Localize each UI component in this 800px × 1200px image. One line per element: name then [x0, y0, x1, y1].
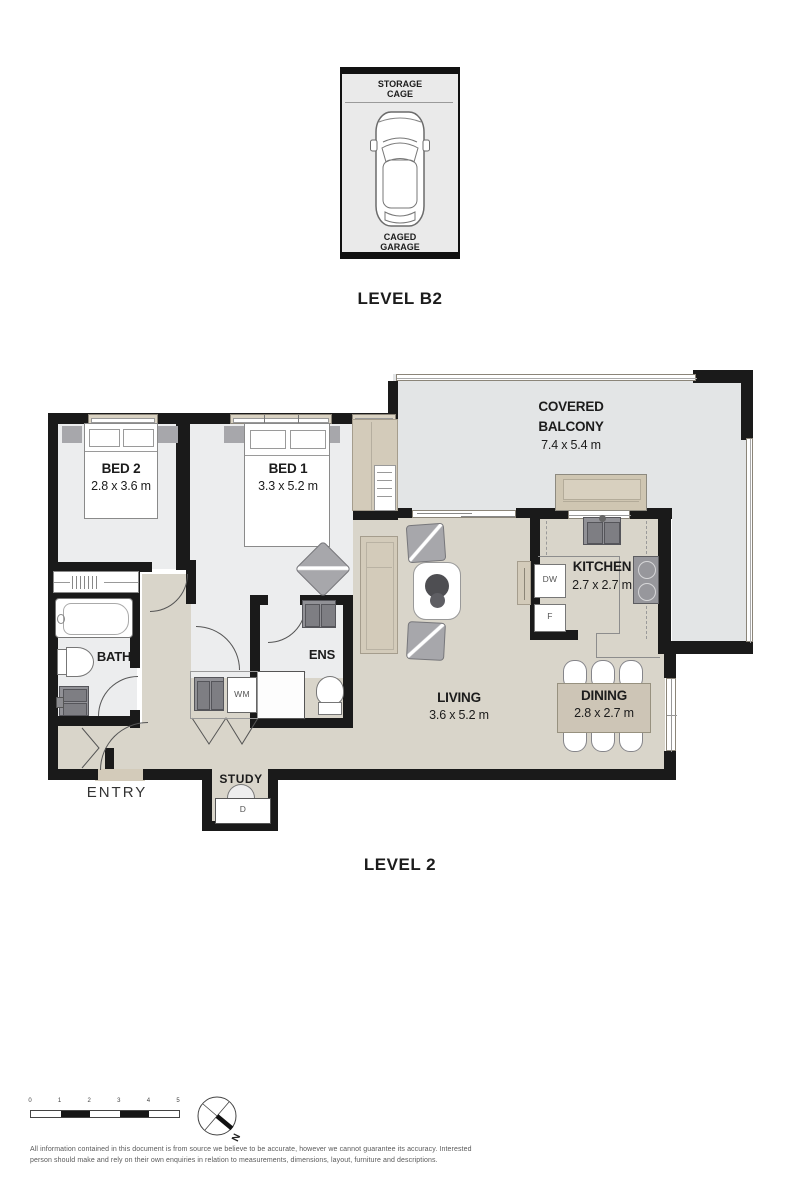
coffee-table-icon — [413, 562, 461, 620]
compass-icon: N — [191, 1092, 247, 1148]
disclaimer-line-1: All information contained in this docume… — [30, 1146, 472, 1153]
ensuite-sink-icon — [302, 600, 336, 628]
room-label-ens: ENS — [309, 647, 335, 662]
room-dims-bed2: 2.8 x 3.6 m — [91, 479, 151, 493]
kitchen-sink-icon — [583, 517, 621, 545]
room-label-bed1: BED 1 — [269, 461, 308, 476]
wardrobe-icon — [352, 419, 398, 511]
laundry-sink-icon — [194, 677, 224, 711]
counter-line — [596, 633, 620, 634]
bathtub-icon — [55, 598, 133, 638]
room-dims-dining: 2.8 x 2.7 m — [574, 706, 634, 720]
linen-cupboard-icon — [53, 571, 139, 593]
dishwasher-label: DW — [543, 574, 558, 584]
room-label-bed2: BED 2 — [102, 461, 141, 476]
nightstand-icon — [62, 426, 82, 443]
room-label-kitchen: KITCHEN — [573, 559, 632, 574]
scale-bar-segments — [30, 1110, 180, 1118]
room-label-entry: ENTRY — [87, 784, 148, 801]
room-label-living: LIVING — [437, 690, 481, 705]
scale-tick: 3 — [117, 1098, 120, 1104]
nightstand-icon — [224, 426, 244, 443]
counter-line — [538, 556, 620, 557]
scale-tick: 4 — [147, 1098, 150, 1104]
room-dims-balcony: 7.4 x 5.4 m — [541, 438, 601, 452]
room-dims-kitchen: 2.7 x 2.7 m — [572, 578, 632, 592]
outdoor-sofa-icon — [555, 474, 647, 511]
room-label-balcony: COVERED BALCONY — [516, 397, 626, 437]
overhead-cupboard-line — [546, 521, 547, 555]
room-label-study: STUDY — [219, 772, 262, 786]
room-dims-bed1: 3.3 x 5.2 m — [258, 479, 318, 493]
scale-tick: 1 — [58, 1098, 61, 1104]
room-label-bath: BATH — [97, 649, 131, 664]
nightstand-icon — [158, 426, 178, 443]
counter-line — [596, 657, 660, 658]
console-icon — [517, 561, 531, 605]
scale-tick: 0 — [28, 1098, 31, 1104]
scale-tick: 2 — [88, 1098, 91, 1104]
counter-line — [596, 633, 597, 658]
room-dims-living: 3.6 x 5.2 m — [429, 708, 489, 722]
tv-unit-icon — [360, 536, 398, 654]
level-2-title: LEVEL 2 — [364, 855, 436, 875]
fridge-label: F — [547, 611, 553, 621]
disclaimer-line-2: person should make and rely on their own… — [30, 1157, 438, 1164]
shower-icon — [257, 671, 305, 719]
armchair-icon — [406, 621, 446, 661]
armchair-icon — [406, 523, 447, 564]
toilet-icon — [57, 647, 93, 675]
vanity-sink-icon — [59, 686, 89, 716]
scale-tick: 5 — [176, 1098, 179, 1104]
floorplan-document: STORAGE CAGE CAGED GARAGE LEVEL B2 — [0, 0, 800, 1200]
cooktop-icon — [633, 556, 659, 604]
room-label-dining: DINING — [581, 688, 627, 703]
toilet-icon — [316, 676, 342, 714]
scale-bar: 0 1 2 3 4 5 — [30, 1098, 190, 1120]
washing-machine-label: WM — [234, 689, 250, 699]
desk-label: D — [240, 804, 246, 814]
compass-north-label: N — [229, 1131, 242, 1142]
